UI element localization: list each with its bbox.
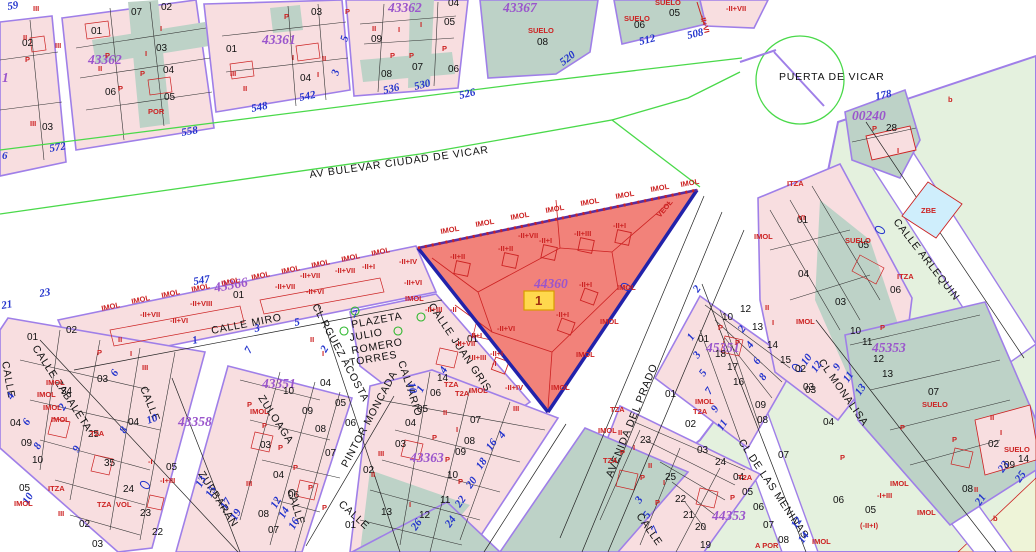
parcel-number: 03 — [42, 122, 54, 133]
parcel-number: 23 — [140, 508, 152, 519]
red-annotation: IMOL — [796, 317, 815, 326]
red-annotation: TZA — [97, 500, 112, 509]
red-annotation: P — [655, 498, 660, 507]
red-annotation: IMOL — [51, 415, 70, 424]
parcel-number: 03 — [805, 385, 817, 396]
parcel-number: 15 — [780, 355, 792, 366]
parcel-number: 03 — [260, 440, 272, 451]
red-annotation: P — [900, 423, 905, 432]
red-annotation: -II+VII — [335, 266, 355, 275]
red-annotation: IMOL — [598, 426, 617, 435]
parcel-number: 08 — [757, 415, 769, 426]
parcel-number: 04 — [823, 417, 835, 428]
parcel-number: 13 — [882, 369, 894, 380]
block-id: 43358 — [177, 414, 212, 429]
parcel-number: 04 — [405, 418, 417, 429]
parcel-number: 03 — [92, 539, 104, 550]
parcel-number: 12 — [740, 304, 752, 315]
red-annotation: III — [246, 479, 252, 488]
parcel-number: 05 — [444, 17, 456, 28]
road-number: 6 — [2, 150, 8, 162]
parcel-number: 09 — [371, 34, 383, 45]
parcel-number: 09 — [455, 447, 467, 458]
parcel-number: 28 — [886, 123, 898, 134]
block-id: 44360 — [533, 276, 568, 291]
parcel-number: 09 — [1004, 460, 1016, 471]
parcel-number: 02 — [795, 364, 807, 375]
red-annotation: I — [409, 500, 411, 509]
red-annotation: P — [105, 51, 110, 60]
parcel-number: 07 — [325, 448, 337, 459]
red-annotation: -II+VII — [275, 282, 295, 291]
block-id: 45353 — [871, 340, 906, 355]
red-annotation: -I+III — [160, 476, 175, 485]
red-annotation: IMOL — [650, 182, 670, 194]
red-annotation: I — [420, 20, 422, 29]
red-annotation: -II+IV — [505, 383, 523, 392]
road-number: 21 — [0, 298, 13, 312]
red-annotation: I — [145, 49, 147, 58]
parcel-number: 25 — [665, 472, 677, 483]
parcel-number: 24 — [715, 457, 727, 468]
parcel-number: 05 — [417, 404, 429, 415]
road-number: 23 — [37, 286, 51, 300]
red-annotation: -II+VII — [140, 310, 160, 319]
red-annotation: -I+III — [877, 491, 892, 500]
red-annotation: P — [390, 51, 395, 60]
red-annotation: -II+VII — [726, 4, 746, 13]
red-annotation: -II+I — [469, 331, 482, 340]
parcel-number: 14 — [767, 340, 779, 351]
red-annotation: I — [130, 349, 132, 358]
road-number: 59 — [6, 0, 19, 13]
red-annotation: (-II+I) — [860, 521, 879, 530]
block-id: 43361 — [261, 32, 296, 47]
red-annotation: P — [284, 12, 289, 21]
parcel-number: 06 — [288, 490, 300, 501]
red-annotation: P — [872, 124, 877, 133]
street-label: PUERTA DE VICAR — [779, 71, 885, 83]
red-annotation: VI — [798, 213, 805, 222]
red-annotation: IMOL — [617, 283, 636, 292]
marker-number: 1 — [535, 293, 542, 308]
red-annotation: P — [458, 477, 463, 486]
red-annotation: II — [118, 335, 122, 344]
parcel-number: 06 — [833, 495, 845, 506]
red-annotation: ITZA — [48, 484, 65, 493]
parcel-number: 17 — [727, 362, 739, 373]
parcel-number: 10 — [722, 312, 734, 323]
red-annotation: b — [993, 514, 998, 523]
selected-parcel-marker[interactable]: 1 — [524, 291, 554, 310]
red-annotation: -II+III — [425, 305, 442, 314]
red-annotation: I — [772, 318, 774, 327]
red-annotation: T2A — [738, 473, 753, 482]
red-annotation: P — [140, 69, 145, 78]
parcel-number: 07 — [268, 525, 280, 536]
parcel-number: 06 — [345, 418, 357, 429]
parcel-number: 06 — [448, 64, 460, 75]
parcel-number: 01 — [345, 520, 357, 531]
red-annotation: P — [718, 323, 723, 332]
red-annotation: -II+VI — [404, 278, 422, 287]
red-annotation: T2A — [455, 389, 470, 398]
red-annotation: ITZA — [897, 272, 914, 281]
red-annotation: I — [322, 349, 324, 358]
parcel-number: 08 — [258, 509, 270, 520]
parcel-number: 22 — [675, 494, 687, 505]
red-annotation: P — [409, 51, 414, 60]
parcel-number: 08 — [464, 436, 476, 447]
parcel-number: 03 — [835, 297, 847, 308]
road-number: 542 — [298, 89, 317, 104]
red-annotation: -II+VII — [300, 271, 320, 280]
red-annotation: II — [243, 84, 247, 93]
block-id: 43362 — [387, 0, 422, 15]
red-annotation: II — [618, 428, 622, 437]
red-annotation: II — [310, 335, 314, 344]
parcel-number: 14 — [1018, 454, 1030, 465]
red-annotation: II — [371, 470, 375, 479]
cadastral-map-viewport[interactable]: 1 AV BULEVAR CIUDAD DE VICARPUERTA DE VI… — [0, 0, 1036, 552]
parcel-number: 09 — [755, 400, 767, 411]
parcel-number: 03 — [697, 445, 709, 456]
red-annotation: -I — [148, 457, 153, 466]
red-annotation: IMOL — [405, 294, 424, 303]
red-annotation: P — [97, 348, 102, 357]
parcel-number: 02 — [79, 519, 91, 530]
parcel-number: 10 — [283, 386, 295, 397]
red-annotation: II — [648, 461, 652, 470]
red-annotation: IMOL — [43, 403, 62, 412]
parcel-number: 03 — [311, 7, 323, 18]
red-annotation: SUELO — [655, 0, 681, 7]
parcel-number: 23 — [640, 435, 652, 446]
red-annotation: III — [58, 509, 64, 518]
red-annotation: P — [262, 421, 267, 430]
red-annotation: P — [442, 44, 447, 53]
red-annotation: IMOL — [600, 317, 619, 326]
parcel-number: 10 — [850, 326, 862, 337]
red-annotation: P — [445, 455, 450, 464]
red-annotation: IMOL — [545, 203, 565, 215]
red-annotation: IMOL — [37, 390, 56, 399]
red-annotation: P — [620, 448, 625, 457]
red-annotation: P — [880, 323, 885, 332]
red-annotation: -II+II — [450, 252, 465, 261]
parcel-number: 01 — [233, 290, 245, 301]
red-annotation: I — [398, 25, 400, 34]
parcel-number: 04 — [320, 378, 332, 389]
parcel-number: 07 — [131, 7, 143, 18]
red-annotation: SUELO — [528, 26, 554, 35]
red-annotation: II — [765, 303, 769, 312]
red-annotation: SUELO — [1004, 445, 1030, 454]
red-annotation: -II+I — [613, 221, 626, 230]
parcel-number: 20 — [695, 522, 707, 533]
parcel-number: 04 — [273, 470, 285, 481]
road-number: 526 — [458, 86, 477, 102]
parcel-number: 01 — [27, 332, 39, 343]
parcel-number: 16 — [733, 377, 745, 388]
red-annotation: I — [897, 146, 899, 155]
parcel-number: 11 — [862, 337, 873, 348]
red-annotation: IMOL — [680, 177, 700, 189]
parcel-number: 05 — [164, 92, 176, 103]
parcel-number: 05 — [669, 8, 681, 19]
parcel-number: 04 — [300, 73, 312, 84]
parcel-number: 11 — [440, 495, 451, 506]
parcel-number: 18 — [715, 349, 727, 360]
parcel-number: 06 — [890, 285, 902, 296]
parcel-number: 03 — [156, 43, 168, 54]
red-annotation: -II — [450, 305, 457, 314]
red-annotation: I — [292, 53, 294, 62]
red-annotation: III — [142, 363, 148, 372]
parcel-number: 02 — [66, 325, 78, 336]
red-annotation: II — [974, 485, 978, 494]
parcel-number: 09 — [21, 438, 33, 449]
parcel-number: 06 — [105, 87, 117, 98]
parcel-number: 07 — [928, 387, 940, 398]
red-annotation: -II+I — [539, 236, 552, 245]
red-annotation: P — [840, 453, 845, 462]
red-annotation: -II+I — [490, 349, 503, 358]
block-id: 00240 — [852, 108, 886, 123]
parcel-number: 22 — [152, 527, 164, 538]
red-annotation: II — [990, 413, 994, 422]
red-annotation: P — [25, 55, 30, 64]
parcel-number: 01 — [91, 26, 103, 37]
red-annotation: P — [278, 443, 283, 452]
parcel-number: 01 — [226, 44, 238, 55]
red-annotation: I — [317, 70, 319, 79]
red-annotation: IMOL — [475, 217, 495, 229]
parcel-number: 04 — [10, 418, 22, 429]
parcel-number: 06 — [753, 502, 765, 513]
red-annotation: -II+III — [469, 353, 486, 362]
parcel-number: 34 — [61, 386, 73, 397]
red-annotation: POR — [148, 107, 165, 116]
red-annotation: IMOL — [510, 210, 530, 222]
street-label: AV BULEVAR CIUDAD DE VICAR — [309, 144, 490, 181]
red-annotation: -II+VI — [306, 287, 324, 296]
red-annotation: -I — [492, 359, 497, 368]
red-annotation: -II+VII — [518, 231, 538, 240]
red-annotation: IMOL — [754, 232, 773, 241]
red-annotation: -II+VII — [455, 339, 475, 348]
red-annotation: I — [633, 443, 635, 452]
parcel-number: 01 — [665, 389, 677, 400]
parcel-number: 02 — [161, 2, 173, 13]
red-annotation: b — [948, 95, 953, 104]
red-annotation: P — [730, 493, 735, 502]
red-annotation: IMOL — [615, 189, 635, 201]
red-annotation: IMOL — [812, 537, 831, 546]
red-annotation: P — [640, 473, 645, 482]
red-annotation: P — [293, 463, 298, 472]
red-annotation: -II+VI — [497, 324, 515, 333]
red-annotation: T2A — [693, 407, 708, 416]
red-annotation: I — [1000, 428, 1002, 437]
parcel-number: 08 — [778, 535, 790, 546]
parcel-number: 08 — [537, 37, 549, 48]
parcel-number: 12 — [873, 354, 885, 365]
red-annotation: TZA — [603, 456, 618, 465]
red-annotation: -II+III — [574, 229, 591, 238]
parcel-number: 05 — [19, 483, 31, 494]
parcel-number: 07 — [763, 520, 775, 531]
red-annotation: P — [308, 483, 313, 492]
parcel-number: 35 — [104, 458, 116, 469]
red-annotation: IMOL — [695, 397, 714, 406]
parcel-number: 12 — [419, 510, 431, 521]
parcel-number: 21 — [683, 510, 695, 521]
red-annotation: ZBE — [921, 206, 936, 215]
parcel-number: 19 — [700, 540, 712, 551]
red-annotation: P — [345, 7, 350, 16]
red-annotation: IMOL — [917, 508, 936, 517]
parcel-number: 04 — [128, 417, 140, 428]
red-annotation: IMOL — [576, 350, 595, 359]
red-annotation: III — [513, 404, 519, 413]
red-annotation: ITZA — [787, 179, 804, 188]
red-annotation: T2A — [90, 429, 105, 438]
red-annotation: TZA — [444, 380, 459, 389]
red-annotation: SUELO — [922, 400, 948, 409]
parcel-number: 03 — [395, 439, 407, 450]
road-number: 548 — [250, 100, 269, 115]
parcel-number: 02 — [988, 439, 1000, 450]
red-annotation: IMOL — [14, 499, 33, 508]
red-annotation: II — [443, 408, 447, 417]
red-annotation: IMOL — [469, 386, 488, 395]
parcel-number: 04 — [798, 269, 810, 280]
red-annotation: VOL — [116, 500, 132, 509]
red-annotation: IMOL — [46, 378, 65, 387]
red-annotation: IMOL — [250, 407, 269, 416]
red-annotation: II — [372, 24, 376, 33]
parcel-number: 05 — [335, 398, 347, 409]
red-annotation: -II+II — [498, 244, 513, 253]
red-annotation: P — [322, 503, 327, 512]
red-annotation: III — [55, 41, 61, 50]
red-annotation: P — [432, 433, 437, 442]
red-annotation: II — [322, 54, 326, 63]
red-annotation: P — [952, 435, 957, 444]
red-annotation: III — [33, 4, 39, 13]
red-annotation: I — [663, 478, 665, 487]
parcel-number: 03 — [97, 374, 109, 385]
parcel-number: 08 — [315, 424, 327, 435]
red-annotation: -II+I — [362, 262, 375, 271]
parcel-number: 05 — [166, 462, 178, 473]
red-annotation: TZA — [610, 405, 625, 414]
parcel-number: 10 — [447, 470, 459, 481]
parcel-number: 24 — [123, 484, 135, 495]
red-annotation: -II+IV — [399, 257, 417, 266]
red-annotation: SUELO — [845, 236, 871, 245]
red-annotation: P — [735, 338, 740, 347]
parcel-number: 13 — [381, 507, 393, 518]
red-annotation: P — [247, 400, 252, 409]
red-annotation: IMOL — [440, 224, 460, 236]
red-annotation: III — [378, 449, 384, 458]
road-number: 558 — [180, 124, 199, 139]
parcel-number: 10 — [32, 455, 44, 466]
cadastral-map: 1 AV BULEVAR CIUDAD DE VICARPUERTA DE VI… — [0, 0, 1036, 552]
red-annotation: I — [160, 24, 162, 33]
red-annotation: IMOL — [551, 383, 570, 392]
block-id: 43367 — [502, 0, 538, 15]
parcel-number: 07 — [778, 450, 790, 461]
red-annotation: P — [118, 84, 123, 93]
parcel-number: 09 — [302, 406, 314, 417]
red-annotation: IMOL — [580, 196, 600, 208]
block-id: 43363 — [409, 450, 444, 465]
parcel-number: 04 — [448, 0, 460, 9]
red-annotation: III — [230, 69, 236, 78]
parcel-number: 13 — [752, 322, 764, 333]
block-id: 44353 — [711, 508, 746, 523]
red-annotation: III — [30, 119, 36, 128]
parcel-number: 07 — [470, 415, 482, 426]
red-annotation: -II+VIII — [190, 299, 212, 308]
parcel-number: 02 — [685, 419, 697, 430]
red-annotation: I — [456, 425, 458, 434]
parcel-number: 01 — [698, 334, 710, 345]
parcel-number: 04 — [163, 65, 175, 76]
red-annotation: SUELO — [624, 14, 650, 23]
block-id: 1 — [2, 70, 9, 85]
parcel-number: 05 — [742, 487, 754, 498]
red-annotation: -II+VI — [170, 316, 188, 325]
parcel-number: 07 — [412, 62, 424, 73]
red-annotation: IMOL — [890, 479, 909, 488]
red-annotation: -II+I — [579, 280, 592, 289]
red-annotation: -II+I — [556, 310, 569, 319]
parcel-number: 08 — [962, 484, 974, 495]
red-annotation: II — [98, 64, 102, 73]
parcel-number: 08 — [381, 69, 393, 80]
red-annotation: II — [23, 33, 27, 42]
parcel-number: 06 — [430, 388, 442, 399]
red-annotation: A POR — [755, 541, 779, 550]
parcel-number: 05 — [865, 505, 877, 516]
